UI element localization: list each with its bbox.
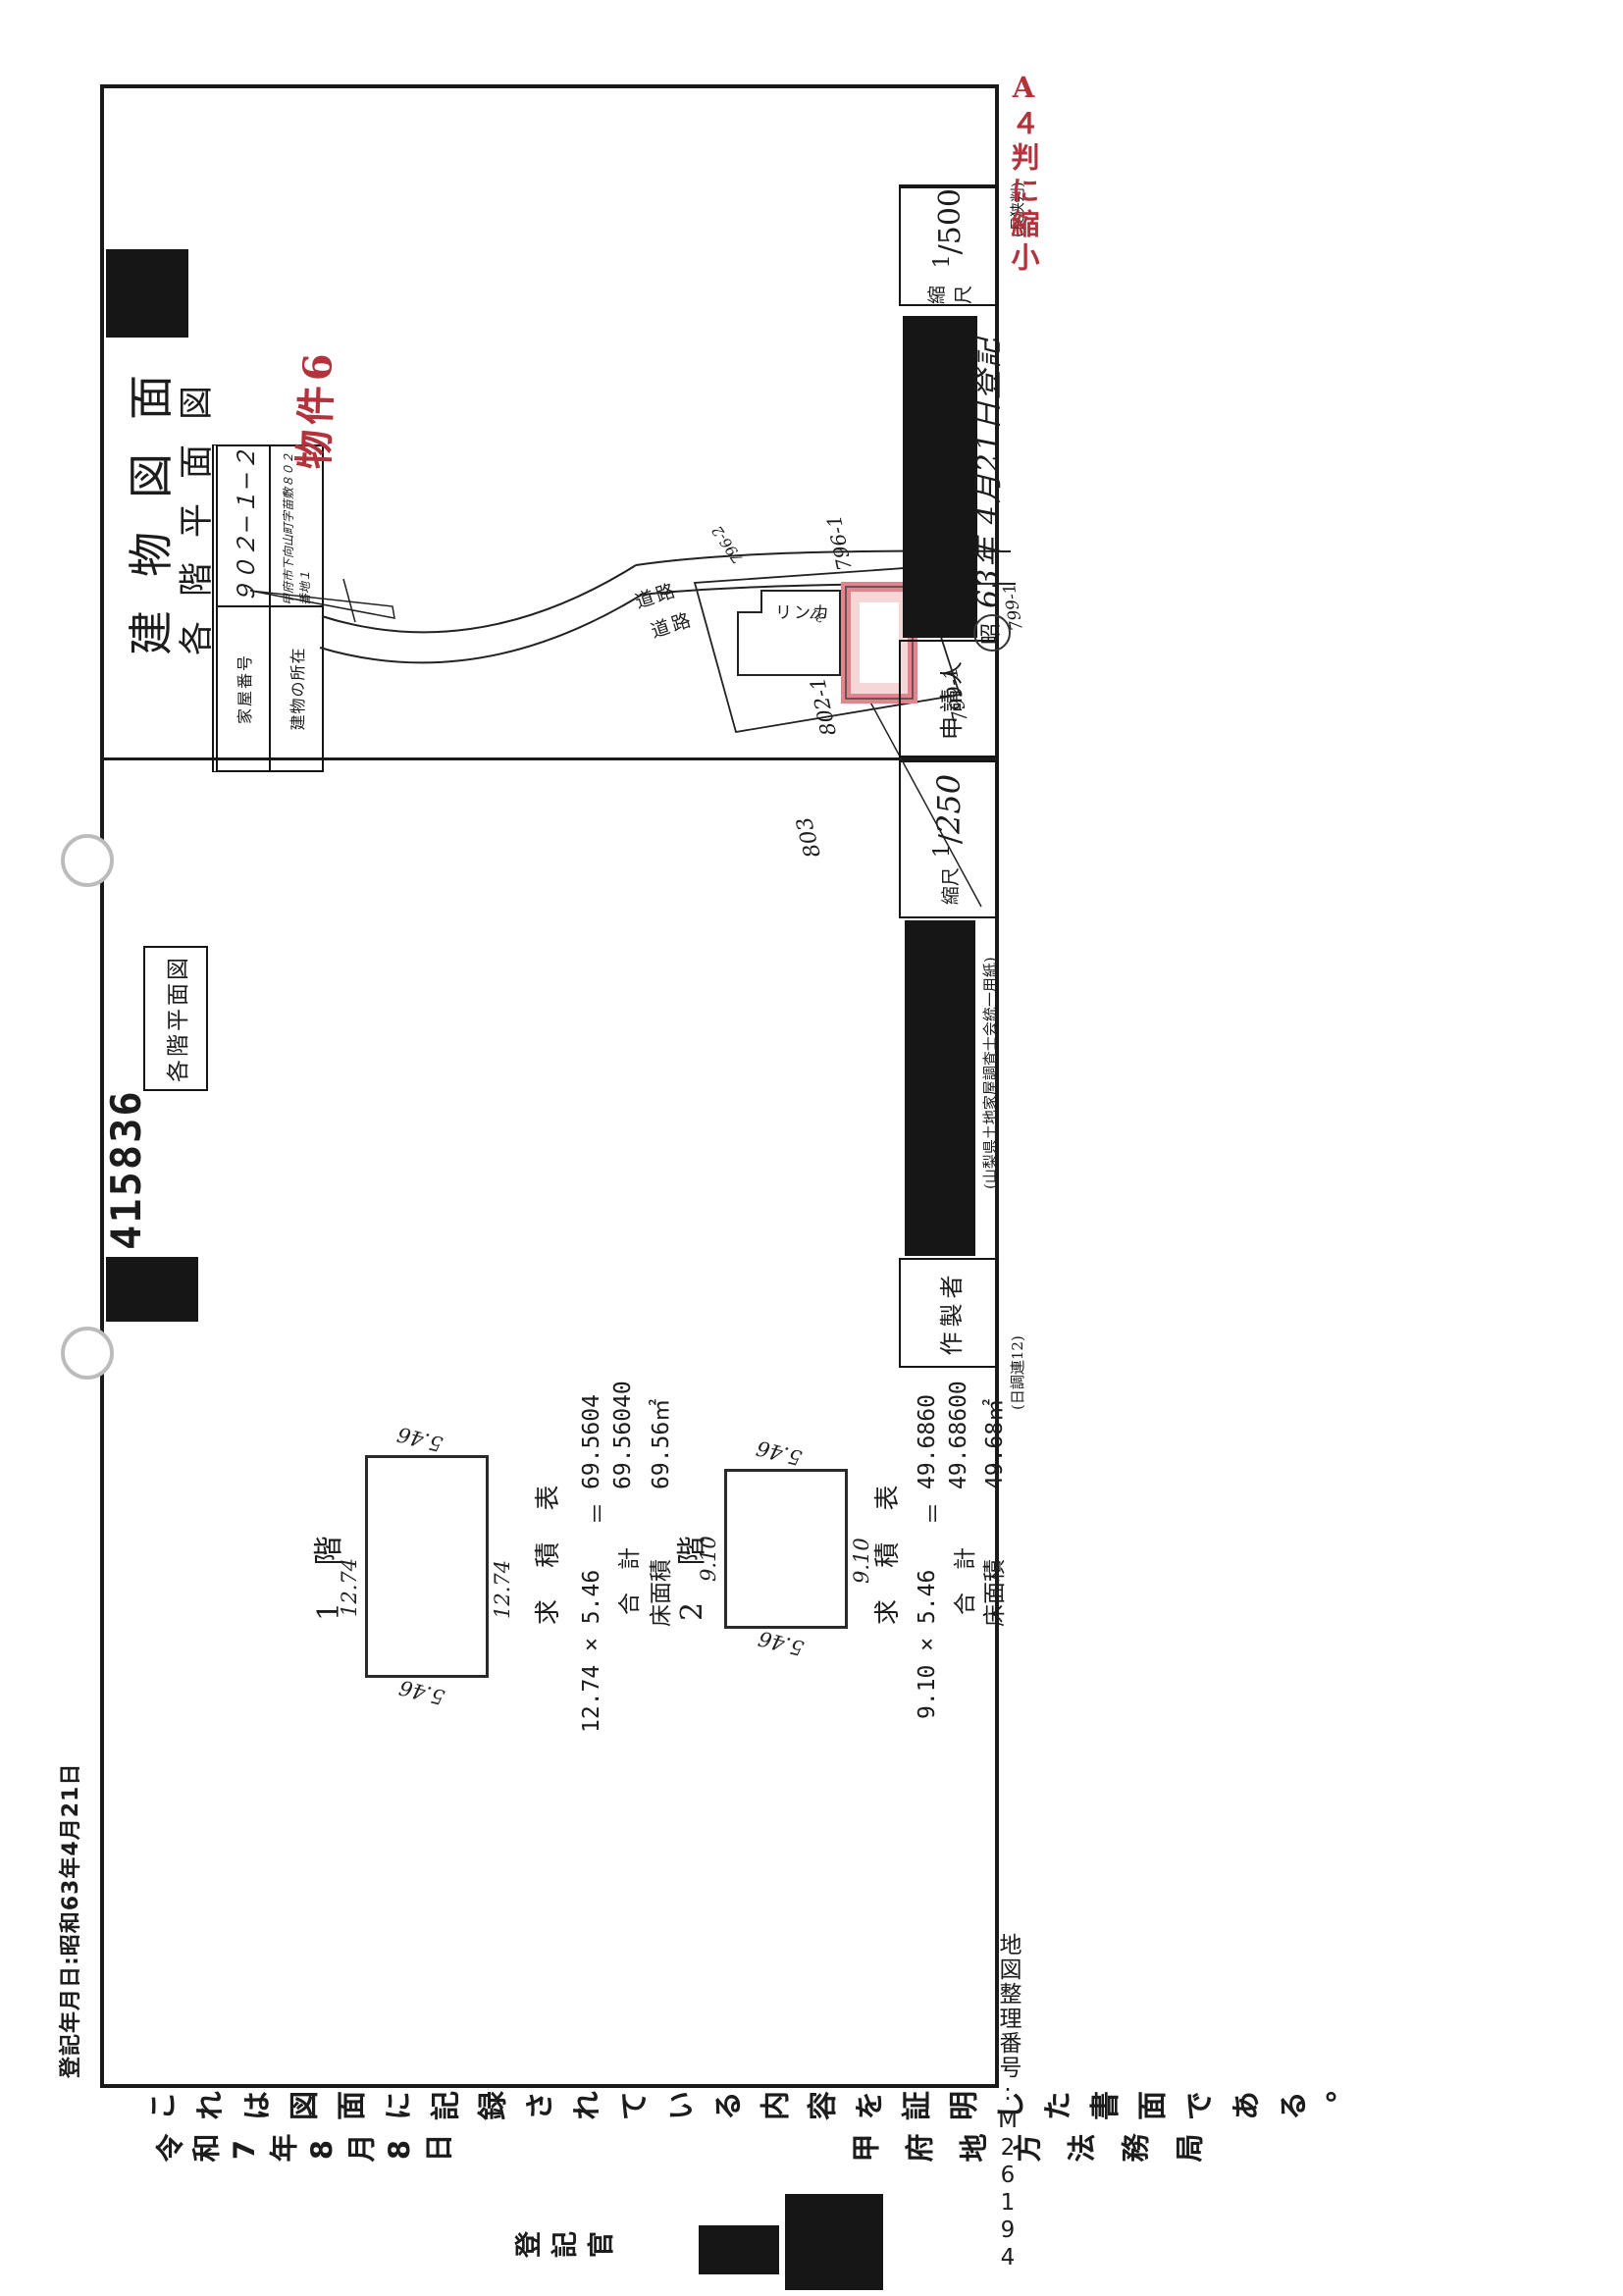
redaction-bar-preparer [905,920,975,1256]
redaction-officer-seal [785,2194,883,2290]
redaction-box-left-header [106,1257,198,1322]
left-section-title: 各階平面図 [159,955,192,1082]
floor1-dim-top: 12.74 [338,1558,361,1617]
preparer-box: 作製者 [899,1258,999,1368]
certification-date: 令和7年8月8日 [155,2133,460,2166]
road-label-1: 道路 [649,608,697,643]
floor1-equals: ＝ [579,1502,612,1525]
floor2-plan-rect [724,1469,848,1629]
vendor-imprint: (山梨県土地家屋調査士会統一用紙) [979,957,1000,1189]
registration-date-note: 登記年月日:昭和63年4月21日 [53,1763,84,2078]
applicant-label: 申請人 [932,657,967,740]
a4-reduction-note: A４判に縮小 [1003,71,1044,276]
certification-officer: 登記官 [514,2228,623,2267]
left-section-title-box: 各階平面図 [143,946,208,1091]
floor1-total: 69.56040 [610,1381,636,1489]
scale-right-numerator: 1 [930,254,955,268]
parcel-label-796-2: 796-2 [708,522,748,567]
survey-title-2: 求 積 表 [867,1473,904,1625]
paper-note-left: (日調連12) [1007,1335,1027,1410]
floor1-result: 69.5604 [579,1394,604,1489]
punch-hole-bottom [61,1327,114,1380]
redaction-box-right-header [106,249,188,338]
scanned-registration-document: { "annotations": { "registration_date": … [0,0,1623,2296]
certification-office: 甲府地方法務局 [851,2133,1229,2166]
stamp-circle-char: 昭 [973,614,1011,652]
redaction-officer-name [699,2225,779,2274]
certification-date-office: 令和7年8月8日 甲府地方法務局 [155,2129,1548,2170]
certification-statement: これは図面に記録されている内容を証明した書面である。 [147,2088,1541,2131]
road-line-2 [322,565,636,632]
floor2-area: 49.68㎡ [975,1399,1009,1489]
floor2-result: 49.6860 [915,1394,940,1489]
scale-right-denominator: 500 [933,188,968,244]
document-number: 415836 [102,1089,150,1250]
floor2-dim-top: 9.10 [697,1536,720,1582]
floor2-total: 49.68600 [946,1381,971,1489]
floor1-total-label: 合 計 [610,1547,644,1615]
drawing-sheet: 登記年月日:昭和63年4月21日 415836 各階平面図 1 階 12.74 … [0,0,1623,2296]
scale-box-right: 縮尺 1∕500 [899,186,999,306]
north-arrow [250,591,394,618]
road-line-1 [320,595,642,662]
parcel-label-802-1: 802-1 [806,675,841,738]
stamp-text: 63年 4月21日登記 [971,337,1006,608]
floor1-area: 69.56㎡ [642,1399,675,1489]
subject-building-inner [860,602,899,683]
scale-fraction-right: 1∕500 [930,188,968,268]
floor1-plan-rect [365,1455,489,1678]
floor1-formula: 12.74 × 5.46 [579,1570,604,1733]
map-reference-number: 地図整理番号:M26194 [991,1933,1024,2272]
punch-hole-top [61,834,114,887]
applicant-box: 申請人 [899,640,999,757]
parcel-label-803: 803 [792,814,825,861]
preparer-label: 作製者 [932,1271,967,1356]
floor2-total-label: 合 計 [946,1547,979,1615]
floor2-equals: ＝ [915,1502,948,1525]
floor2-formula: 9.10 × 5.46 [915,1570,940,1719]
floor2-area-label: 床面積 [975,1559,1009,1627]
registration-stamp-note: 昭63年 4月21日登記 [964,337,1011,652]
parcel-label-796-1: 796-1 [821,513,856,573]
survey-title-1: 求 積 表 [528,1473,564,1625]
road-label-2: 道路 [633,579,681,613]
floor1-dim-bottom: 12.74 [491,1560,514,1619]
scale-label-right: 縮尺 [922,276,975,304]
corner-cell-line [899,184,999,186]
